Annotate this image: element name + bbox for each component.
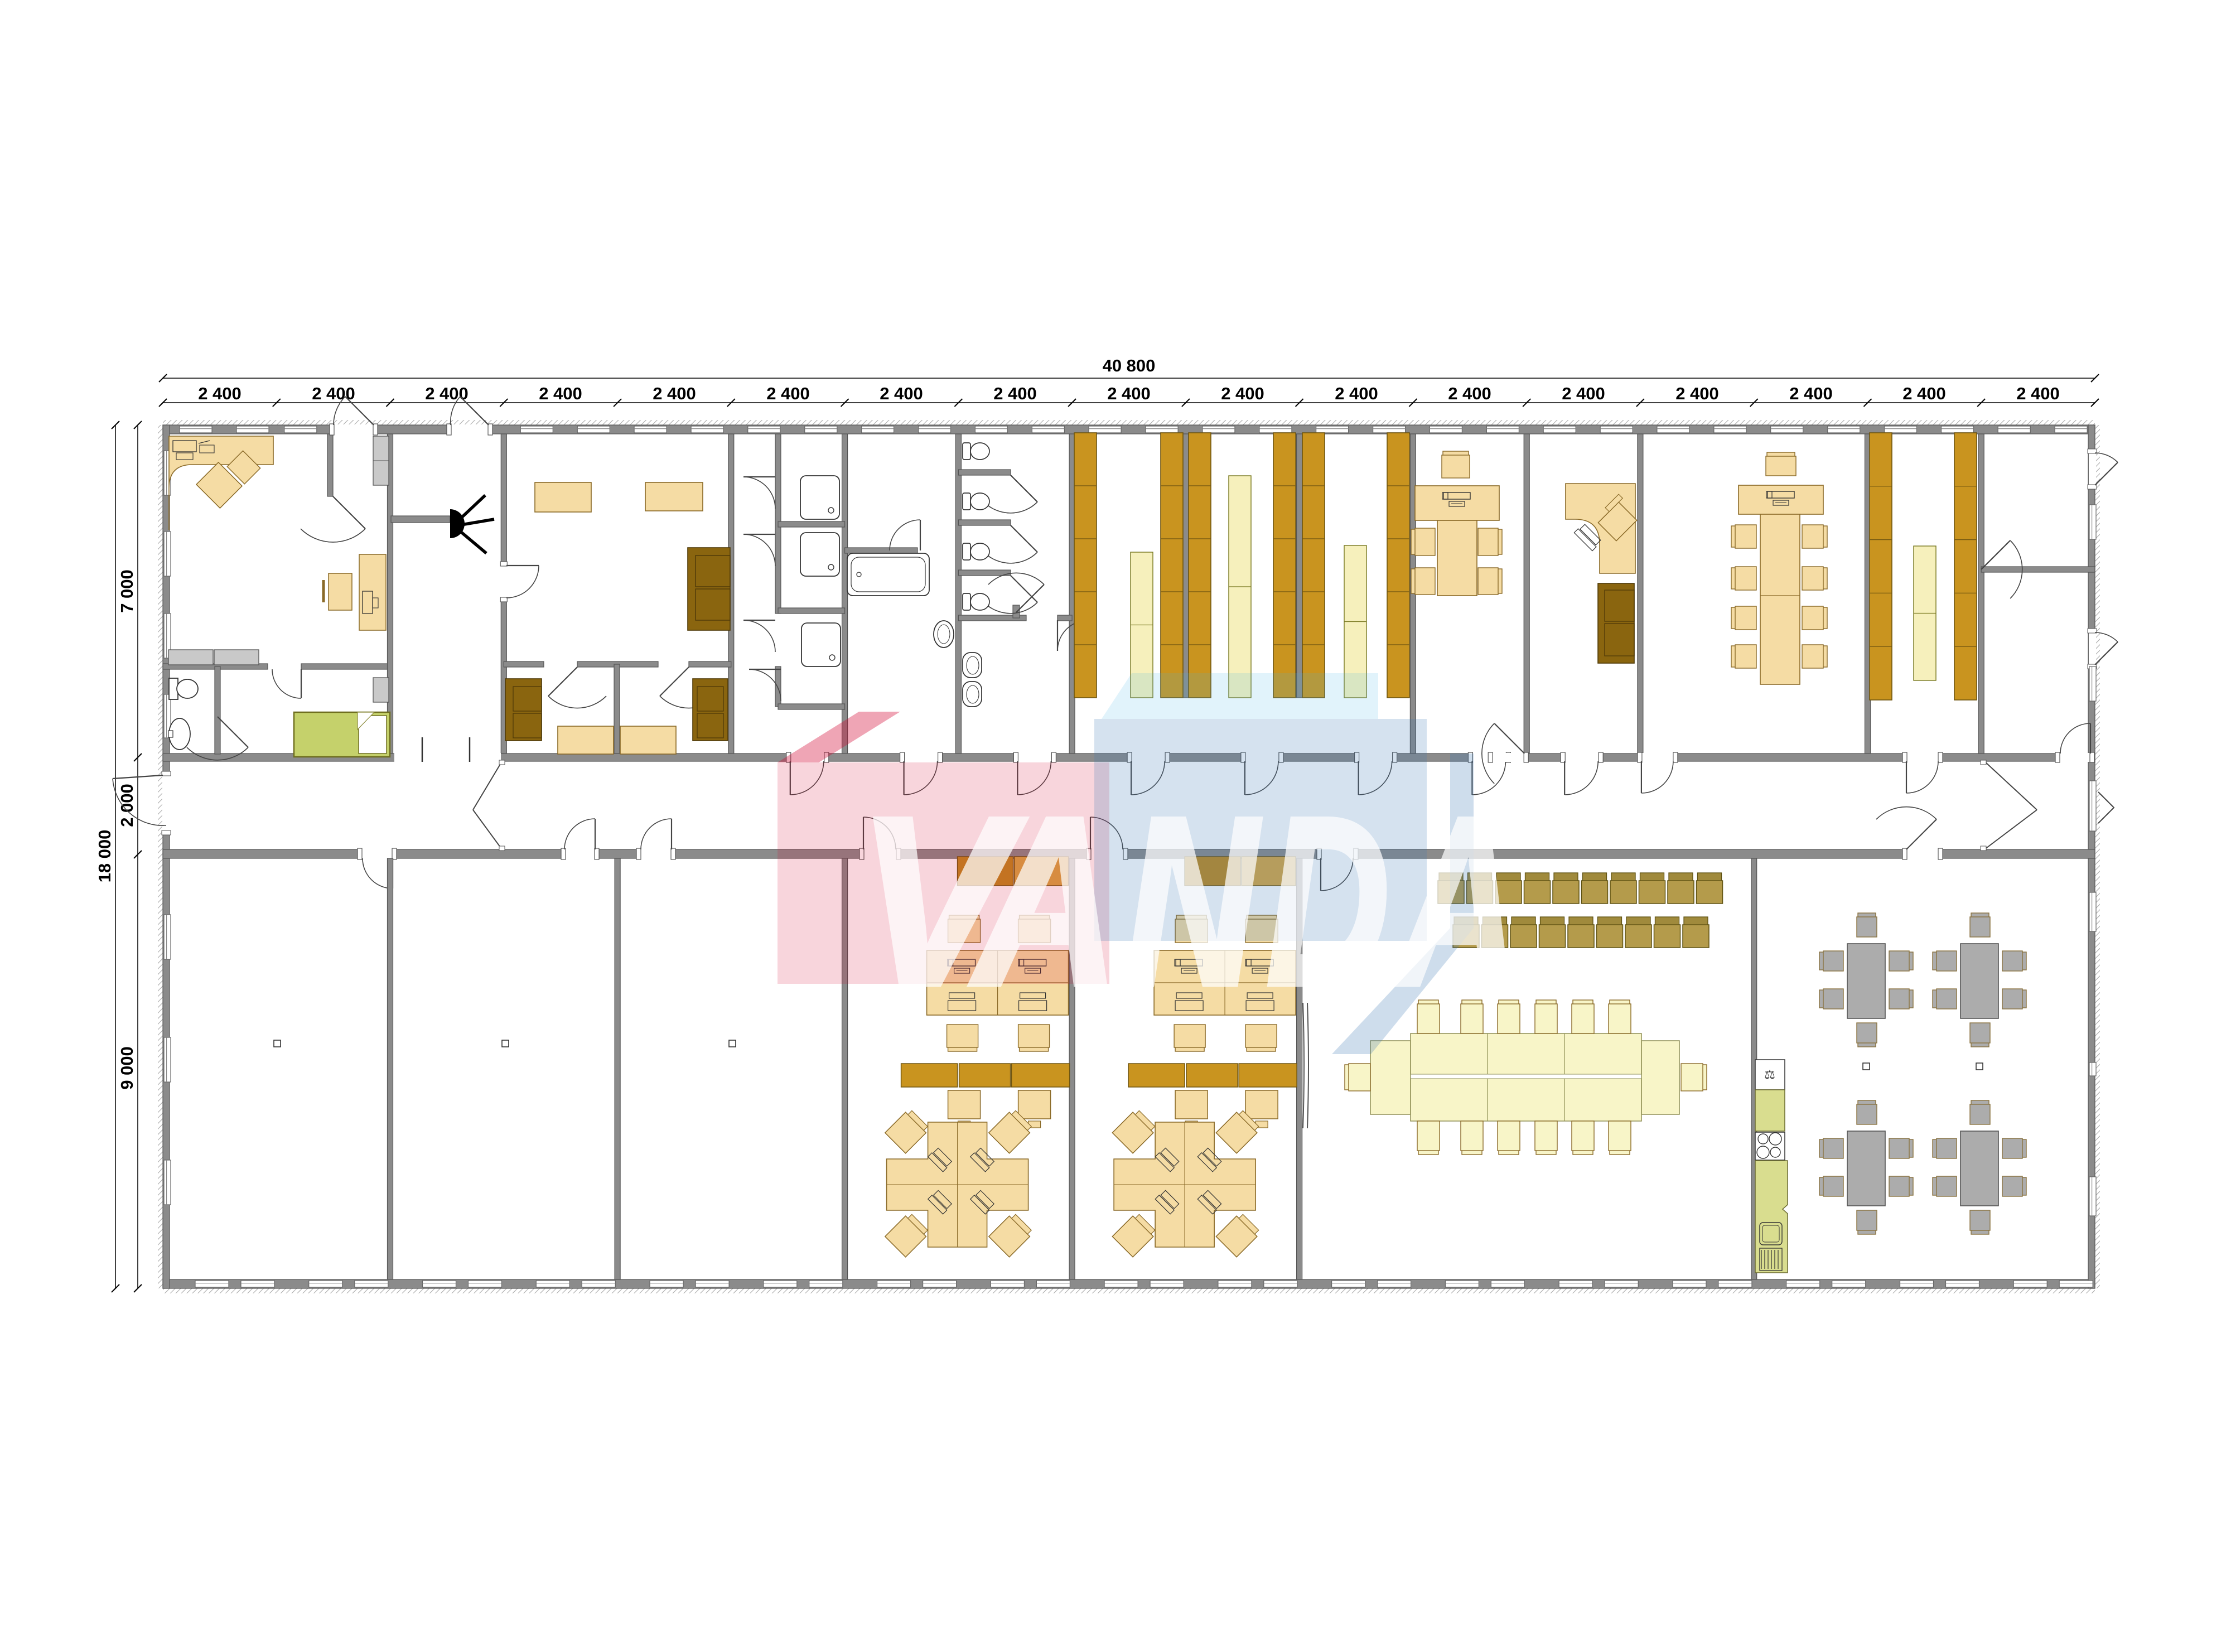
svg-text:D: D (1267, 768, 1389, 1035)
svg-text:2 400: 2 400 (1335, 384, 1378, 403)
svg-text:2 400: 2 400 (1107, 384, 1151, 403)
svg-text:2 400: 2 400 (993, 384, 1037, 403)
svg-text:A: A (1393, 768, 1519, 1035)
svg-text:2 400: 2 400 (1221, 384, 1264, 403)
svg-text:2 400: 2 400 (1675, 384, 1719, 403)
svg-text:2 400: 2 400 (1562, 384, 1605, 403)
svg-text:N: N (1126, 768, 1262, 1035)
svg-text:40 800: 40 800 (1103, 356, 1156, 375)
svg-text:2 400: 2 400 (1789, 384, 1833, 403)
svg-text:9 000: 9 000 (117, 1046, 137, 1090)
svg-text:18 000: 18 000 (95, 830, 114, 883)
svg-text:2 000: 2 000 (117, 784, 137, 827)
svg-text:⚖: ⚖ (1764, 1067, 1775, 1081)
svg-text:2 400: 2 400 (1448, 384, 1491, 403)
svg-text:2 400: 2 400 (653, 384, 696, 403)
svg-text:2 400: 2 400 (198, 384, 242, 403)
svg-text:A: A (969, 768, 1119, 1035)
svg-text:2 400: 2 400 (539, 384, 582, 403)
svg-text:2 400: 2 400 (2016, 384, 2060, 403)
svg-text:2 400: 2 400 (1902, 384, 1946, 403)
svg-text:7 000: 7 000 (117, 569, 137, 613)
svg-text:2 400: 2 400 (425, 384, 469, 403)
svg-text:2 400: 2 400 (766, 384, 810, 403)
svg-text:2 400: 2 400 (880, 384, 923, 403)
